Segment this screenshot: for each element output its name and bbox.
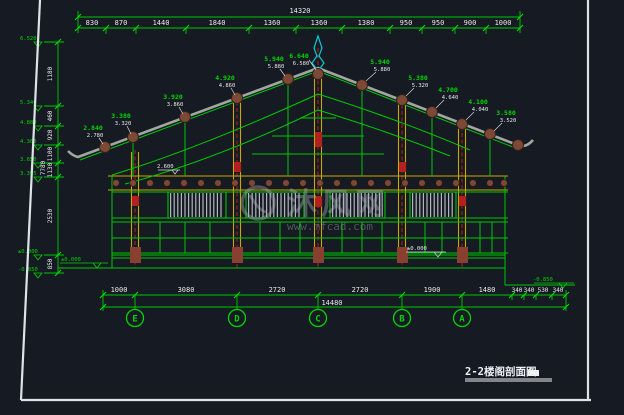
right-low-value: -0.850 [533,277,553,283]
purlin-l4-w: 5.880 [268,64,285,70]
grid-bubble-A: A [459,315,465,325]
left-dim-overall: 7780 [40,160,47,175]
purlin-r4-g: 3.580 [496,109,516,117]
purlin-l3-w: 4.860 [219,83,236,89]
left-dim-seg-5: 2530 [47,208,54,223]
purlin-l3-g: 4.920 [215,74,235,82]
purlin-l4-g: 5.940 [264,55,284,63]
top-dim-seg-1: 870 [115,19,128,27]
top-dim-seg-10: 1000 [495,19,512,27]
cad-canvas: 14320 830 870 1440 1840 1360 1360 1380 9… [0,0,624,415]
bot-dim-seg-6: 340 [512,287,523,294]
left-elev-0: 6.520 [20,36,37,42]
watermark-brand: 沐风网 [287,187,389,222]
floor-zero-value: ±0.000 [407,246,427,252]
purlin-r2-g: 4.700 [438,86,458,94]
left-elev-4: 3.650 [20,157,37,163]
purlin-r4-w: 3.520 [500,118,517,124]
ridge-elev-green: 6.640 [289,52,309,60]
bot-dim-seg-3: 2720 [352,286,369,294]
purlin-l1-w: 3.320 [115,121,132,127]
top-dim-seg-6: 1380 [358,19,375,27]
purlin-r0-g: 5.940 [370,58,390,66]
bot-dim-seg-7: 340 [524,287,535,294]
bot-dim-seg-8: 530 [538,287,549,294]
grid-bubble-C: C [315,315,320,325]
watermark-url: www.mfcad.com [287,220,373,233]
purlin-l0-w: 2.780 [87,133,104,139]
left-dim-seg-3: 1100 [47,146,54,161]
grid-bubble-D: D [234,315,240,325]
top-dim-seg-7: 950 [400,19,413,27]
bot-dim-seg-5: 1480 [479,286,496,294]
cad-viewport: 14320 830 870 1440 1840 1360 1360 1380 9… [0,0,624,415]
top-dim-seg-9: 900 [464,19,477,27]
top-dim-overall: 14320 [289,7,310,15]
purlin-r2-w: 4.640 [442,95,459,101]
top-dim-seg-0: 830 [86,19,99,27]
grid-bubble-B: B [399,315,405,325]
top-dim-seg-4: 1360 [264,19,281,27]
ridge-elev-white: 6.580 [293,61,310,67]
left-dim-seg-2: 920 [47,129,54,140]
purlin-l1-g: 3.380 [111,112,131,120]
top-dim-seg-8: 950 [432,19,445,27]
purlin-l0-g: 2.840 [83,124,103,132]
bot-dim-seg-0: 1000 [111,286,128,294]
drawing-title-text: 2-2楼阁剖面图 [465,365,536,378]
title-scale-block [528,370,539,376]
top-dim-seg-2: 1440 [153,19,170,27]
grid-bubble-E: E [132,315,137,325]
top-dim-seg-3: 1840 [209,19,226,27]
left-dim-seg-0: 1180 [47,66,54,81]
bot-dim-seg-1: 3080 [178,286,195,294]
purlin-r3-w: 4.040 [472,107,489,113]
bot-dim-overall: 14480 [321,299,342,307]
purlin-r1-g: 5.380 [408,74,428,82]
purlin-r0-w: 5.880 [374,67,391,73]
left-dim-seg-6: 850 [47,258,54,269]
left-dim-seg-4: 1130 [47,162,54,177]
left-dim-seg-1: 460 [47,110,54,121]
top-dim-seg-5: 1360 [311,19,328,27]
left-elev-5: 3.395 [20,171,37,177]
bot-dim-seg-2: 2720 [269,286,286,294]
purlin-l2-g: 3.920 [163,93,183,101]
purlin-r1-w: 5.320 [412,83,429,89]
eave-elev-value: 2.600 [157,164,174,170]
purlin-r3-g: 4.100 [468,98,488,106]
bot-dim-seg-4: 1900 [424,286,441,294]
ground-zero-value: ±0.000 [61,257,81,263]
purlin-l2-w: 3.860 [167,102,184,108]
bot-dim-seg-9: 340 [553,287,564,294]
